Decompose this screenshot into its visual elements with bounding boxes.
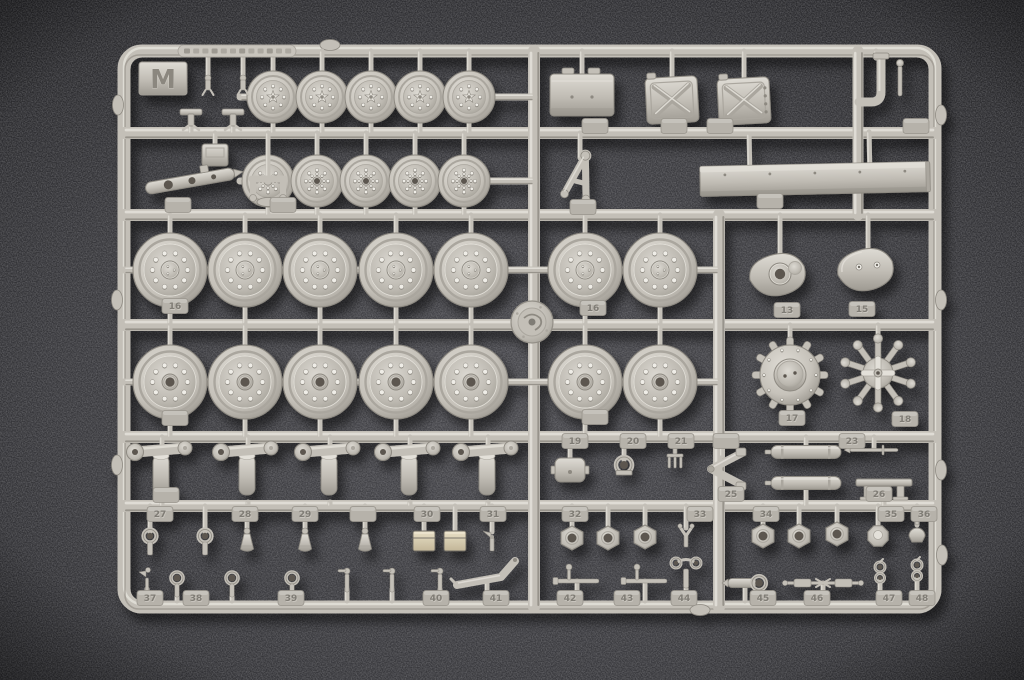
svg-text:31: 31 bbox=[487, 510, 500, 520]
svg-text:23: 23 bbox=[846, 437, 859, 447]
sprue-gate-bump bbox=[112, 290, 123, 310]
svg-text:15: 15 bbox=[856, 305, 869, 315]
svg-text:32: 32 bbox=[569, 510, 582, 520]
part-number-tab: 4343 bbox=[614, 591, 640, 606]
svg-text:16: 16 bbox=[587, 304, 600, 314]
svg-text:47: 47 bbox=[883, 594, 896, 604]
svg-text:26: 26 bbox=[873, 490, 886, 500]
svg-text:13: 13 bbox=[781, 306, 794, 316]
svg-text:34: 34 bbox=[760, 510, 773, 520]
sprue-gate-bump bbox=[937, 545, 948, 565]
part-number-tab: 4545 bbox=[750, 591, 776, 606]
svg-text:17: 17 bbox=[786, 414, 799, 424]
part-number-tab: 3636 bbox=[911, 507, 937, 522]
svg-text:20: 20 bbox=[627, 437, 640, 447]
part-number-tab: 2323 bbox=[839, 434, 865, 449]
part-number-tab: 1616 bbox=[162, 299, 188, 314]
svg-text:40: 40 bbox=[430, 594, 443, 604]
svg-text:46: 46 bbox=[811, 594, 824, 604]
part-number-tab bbox=[757, 194, 783, 209]
sprue-gate-bump bbox=[690, 605, 710, 616]
part-number-tab: 3232 bbox=[562, 507, 588, 522]
sprue-photo-canvas: 1616161613131515171718181919202021212323… bbox=[0, 0, 1024, 680]
svg-text:38: 38 bbox=[190, 594, 203, 604]
part-number-tab: 1919 bbox=[562, 434, 588, 449]
part-number-tab bbox=[165, 198, 191, 213]
part-number-tab bbox=[570, 200, 596, 215]
sprue-gate-bump bbox=[936, 290, 947, 310]
svg-text:19: 19 bbox=[569, 437, 582, 447]
part-number-tab: 3030 bbox=[414, 507, 440, 522]
part-number-tab: 4040 bbox=[423, 591, 449, 606]
part-number-tab: 2121 bbox=[668, 434, 694, 449]
part-number-tab: 1515 bbox=[849, 302, 875, 317]
svg-text:42: 42 bbox=[564, 594, 577, 604]
part-number-tab: 2727 bbox=[147, 507, 173, 522]
svg-text:36: 36 bbox=[918, 510, 931, 520]
part-number-tab bbox=[903, 119, 929, 134]
injection-boss bbox=[511, 301, 553, 343]
part-number-tab: 3131 bbox=[480, 507, 506, 522]
part-number-tab: 3434 bbox=[753, 507, 779, 522]
part-number-tab bbox=[582, 119, 608, 134]
part-number-tab bbox=[707, 119, 733, 134]
svg-text:25: 25 bbox=[725, 490, 738, 500]
part-number-tab: 1313 bbox=[774, 303, 800, 318]
sprue-gate-bump bbox=[113, 95, 124, 115]
part-number-tab bbox=[153, 488, 179, 503]
part-number-tab: 3333 bbox=[687, 507, 713, 522]
sprue-gate-bump bbox=[936, 105, 947, 125]
svg-text:39: 39 bbox=[285, 594, 298, 604]
part-number-tab: 3737 bbox=[137, 591, 163, 606]
sprue-letter: M bbox=[150, 65, 176, 95]
part-number-tab: 2020 bbox=[620, 434, 646, 449]
part-number-tab: 1616 bbox=[580, 301, 606, 316]
svg-text:29: 29 bbox=[299, 510, 312, 520]
svg-text:30: 30 bbox=[421, 510, 434, 520]
svg-text:21: 21 bbox=[675, 437, 688, 447]
sprue-gate-bump bbox=[112, 455, 123, 475]
svg-text:18: 18 bbox=[899, 415, 912, 425]
svg-text:48: 48 bbox=[916, 594, 929, 604]
part-number-tab: 2929 bbox=[292, 507, 318, 522]
svg-text:28: 28 bbox=[239, 510, 252, 520]
part-number-tab bbox=[162, 411, 188, 426]
molded-text-plate bbox=[178, 45, 296, 57]
svg-text:43: 43 bbox=[621, 594, 634, 604]
part-number-tab: 2828 bbox=[232, 507, 258, 522]
svg-text:16: 16 bbox=[169, 302, 182, 312]
part-number-tab: 1717 bbox=[779, 411, 805, 426]
svg-text:41: 41 bbox=[490, 594, 503, 604]
part-number-tab: 3535 bbox=[878, 507, 904, 522]
part-number-tab: 4444 bbox=[671, 591, 697, 606]
part-number-tab: 4141 bbox=[483, 591, 509, 606]
part-number-tab bbox=[270, 198, 296, 213]
part-number-tab bbox=[582, 410, 608, 425]
part-number-tab: 3939 bbox=[278, 591, 304, 606]
part-number-tab: 2626 bbox=[866, 487, 892, 502]
sprue-gate-bump bbox=[936, 460, 947, 480]
part-number-tab bbox=[661, 119, 687, 134]
svg-text:33: 33 bbox=[694, 510, 707, 520]
part-number-tab: 2525 bbox=[718, 487, 744, 502]
part-number-tab: 4848 bbox=[909, 591, 935, 606]
part-number-tab: 4747 bbox=[876, 591, 902, 606]
svg-text:37: 37 bbox=[144, 594, 157, 604]
sprue-photo: 1616161613131515171718181919202021212323… bbox=[0, 0, 1024, 680]
svg-text:35: 35 bbox=[885, 510, 898, 520]
part-number-tab: 3838 bbox=[183, 591, 209, 606]
part-number-tab: 4242 bbox=[557, 591, 583, 606]
part-number-tab bbox=[713, 434, 739, 449]
svg-text:27: 27 bbox=[154, 510, 167, 520]
sprue-letter-plate: M bbox=[139, 62, 187, 95]
part-number-tab bbox=[350, 507, 376, 522]
svg-text:44: 44 bbox=[678, 594, 691, 604]
part-number-tab: 4646 bbox=[804, 591, 830, 606]
svg-text:45: 45 bbox=[757, 594, 770, 604]
part-number-tab: 1818 bbox=[892, 412, 918, 427]
